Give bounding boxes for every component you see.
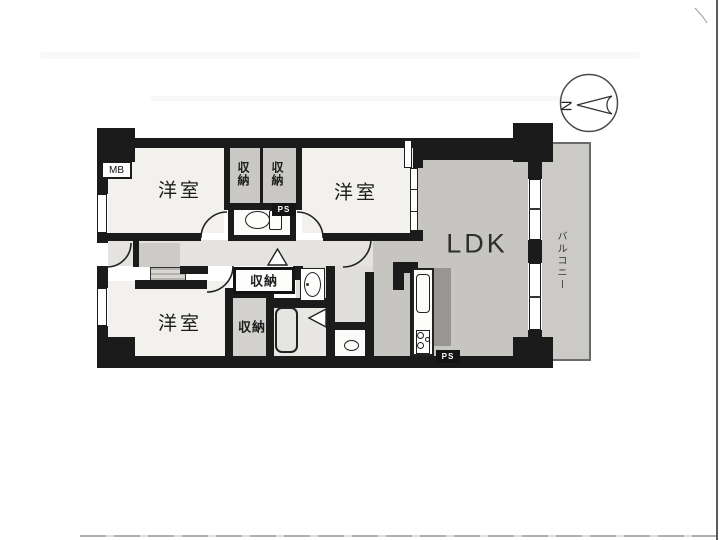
bedroom3-label: 洋室 xyxy=(158,315,202,334)
bedroom1-label: 洋室 xyxy=(158,182,202,201)
folding-door-washroom xyxy=(268,249,287,265)
door-arc-entrance xyxy=(107,243,131,267)
ldk-label: LDK xyxy=(446,231,508,258)
compass: N xyxy=(559,75,618,132)
closet-top-right-label: 収納 xyxy=(271,161,283,187)
folding-door-bathroom xyxy=(309,309,326,327)
compass-needle xyxy=(577,96,612,114)
balcony-label: バルコニー xyxy=(555,231,565,291)
compass-north-label: N xyxy=(559,101,576,112)
bedroom2-label: 洋室 xyxy=(334,184,378,203)
floorplan-page: MB PS PS xyxy=(0,0,720,540)
door-arc-bedroom3 xyxy=(207,266,233,292)
door-arc-bedroom1 xyxy=(201,212,227,238)
closet-bottom-label: 収納 xyxy=(238,321,266,334)
door-arc-ldk xyxy=(343,239,371,267)
door-arc-bedroom2 xyxy=(297,212,323,238)
plan-overlay: N xyxy=(0,0,720,540)
closet-top-left-label: 収納 xyxy=(237,161,249,187)
closet-hall-label: 収納 xyxy=(250,275,278,288)
scan-mark xyxy=(695,8,707,23)
